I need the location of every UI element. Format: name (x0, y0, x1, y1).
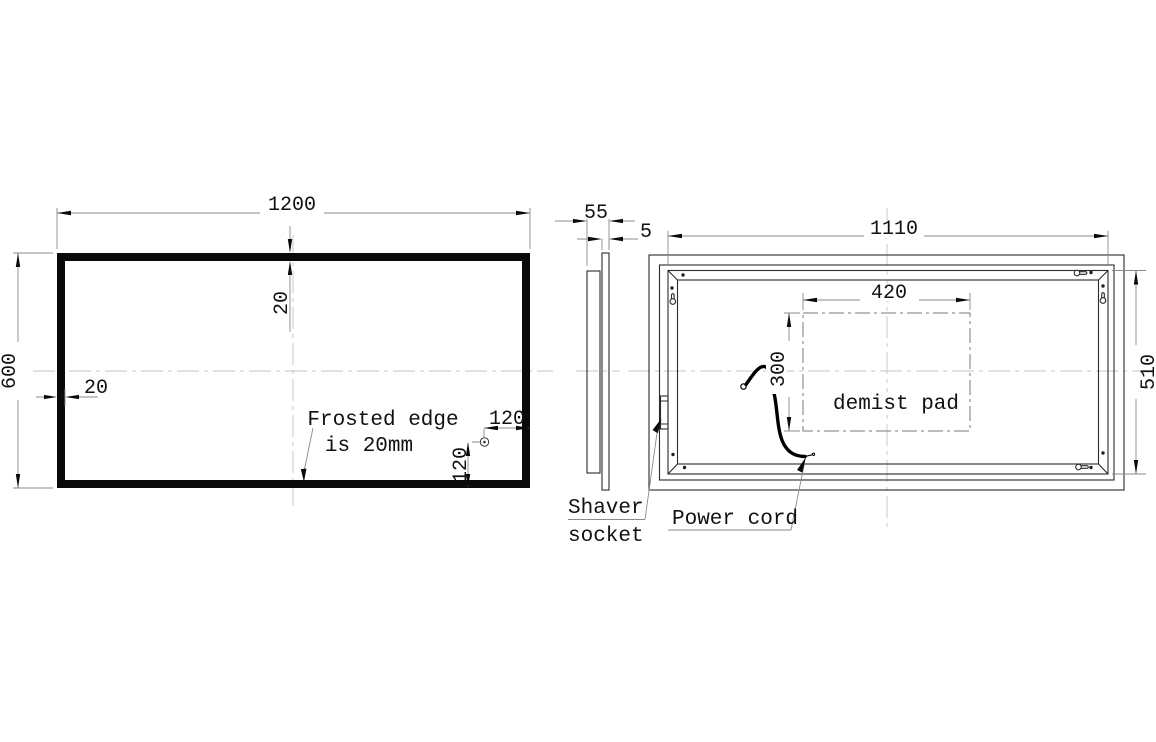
dim-arrow-up (787, 313, 791, 327)
front-width-dim-text: 1200 (268, 194, 316, 217)
screw-dot-icon (1101, 451, 1104, 454)
side-body-outline (587, 271, 600, 473)
leader-arrow (301, 469, 307, 482)
back-view: 1110 510 420 300 demi (568, 208, 1156, 548)
dim-arrow-up (1134, 271, 1138, 285)
dim-arrow-right (516, 211, 530, 215)
shaver-label-line1: Shaver (568, 497, 644, 520)
dim-arrow-up (288, 261, 292, 275)
pad-height-dim-text: 300 (768, 351, 791, 387)
back-height-dim-text: 510 (1138, 354, 1156, 390)
screw-dot-icon (1089, 466, 1092, 469)
dim-arrow-right (956, 298, 970, 302)
keyhole-hanger-icon (1076, 464, 1089, 470)
dim-arrow-left (609, 219, 623, 223)
dim-arrow-down (787, 417, 791, 431)
front-height-dimension: 600 (0, 253, 53, 488)
back-frame-inner (678, 280, 1099, 464)
side-depth-dimension: 55 (555, 202, 635, 266)
screw-dot-icon (1101, 284, 1104, 287)
front-view: 1200 600 20 20 (0, 194, 553, 506)
dim-arrow-left (668, 234, 682, 238)
power-cord-label: Power cord (668, 457, 806, 531)
dim-arrow-left (57, 211, 71, 215)
dim-arrow-left (609, 237, 623, 241)
back-width-dim-text: 1110 (870, 218, 918, 241)
dim-arrow-right (1094, 234, 1108, 238)
sensor-offset-y-text: 120 (450, 447, 473, 483)
frosted-note-line1: Frosted edge (307, 409, 458, 432)
side-view: 55 5 (555, 202, 652, 490)
screw-dot-icon (671, 453, 674, 456)
touch-sensor-icon (480, 438, 488, 446)
dim-arrow-left (803, 298, 817, 302)
dim-arrow-down (288, 239, 292, 253)
side-depth-dim-text: 55 (584, 202, 608, 225)
front-left-edge-dimension: 20 (36, 377, 108, 406)
dim-arrow-right (588, 237, 602, 241)
keyhole-hanger-icon (670, 294, 676, 305)
shaver-socket-label: Shaver socket (568, 419, 662, 549)
frosted-edge-note: Frosted edge is 20mm (301, 409, 459, 482)
screw-dot-icon (681, 273, 684, 276)
keyhole-hanger-icon (1100, 293, 1106, 304)
back-width-dimension: 1110 (668, 218, 1108, 266)
leader-arrow (797, 457, 806, 473)
frosted-note-line2: is 20mm (325, 435, 413, 458)
dim-arrow-up (16, 253, 20, 267)
screw-dot-icon (1089, 271, 1092, 274)
side-glass-dim-text: 5 (640, 221, 652, 244)
dim-arrow-down (1134, 460, 1138, 474)
front-width-dimension: 1200 (57, 194, 530, 249)
dim-arrow-right (44, 395, 57, 399)
front-left-edge-dim-text: 20 (84, 377, 108, 400)
dim-arrow-left (65, 395, 79, 399)
shaver-label-line2: socket (568, 525, 644, 548)
pad-height-dimension: 300 (766, 313, 800, 431)
front-top-edge-dim-text: 20 (271, 291, 294, 315)
shaver-socket (661, 396, 669, 429)
demist-pad-text: demist pad (833, 393, 959, 416)
technical-drawing-page: 1200 600 20 20 (0, 0, 1156, 742)
screw-dot-icon (683, 466, 686, 469)
pad-width-dimension: 420 (803, 282, 970, 310)
pad-width-dim-text: 420 (871, 282, 907, 305)
side-glass-dimension: 5 (577, 221, 652, 250)
dim-arrow-down (16, 474, 20, 488)
mirror-drawing-svg: 1200 600 20 20 (0, 0, 1156, 742)
front-top-edge-dimension: 20 (271, 226, 294, 332)
sensor-offset-x-text: 120 (489, 408, 525, 431)
power-cord-text: Power cord (672, 508, 798, 531)
screw-dot-icon (670, 286, 673, 289)
front-height-dim-text: 600 (0, 353, 22, 389)
back-height-dimension: 510 (1112, 271, 1156, 475)
side-glass-outline (602, 253, 609, 490)
demist-pad-label: demist pad (833, 392, 959, 416)
